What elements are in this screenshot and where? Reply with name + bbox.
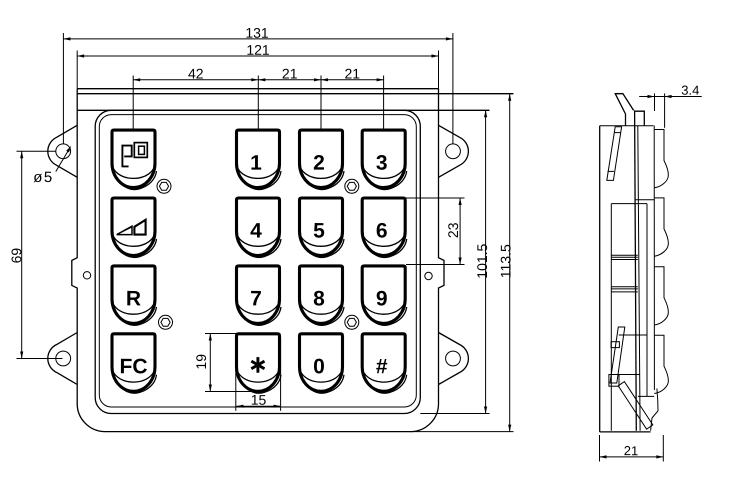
- svg-text:42: 42: [188, 65, 204, 81]
- svg-text:69: 69: [8, 248, 24, 264]
- svg-text:8: 8: [313, 287, 325, 310]
- svg-text:101.5: 101.5: [474, 243, 490, 278]
- svg-text:3: 3: [376, 152, 388, 175]
- svg-text:15: 15: [251, 392, 267, 408]
- svg-text:21: 21: [345, 65, 361, 81]
- svg-text:7: 7: [250, 287, 262, 310]
- svg-text:#: #: [376, 355, 388, 378]
- svg-text:19: 19: [193, 354, 209, 370]
- svg-text:2: 2: [313, 152, 325, 175]
- svg-text:0: 0: [313, 355, 325, 378]
- svg-text:4: 4: [250, 219, 262, 242]
- svg-text:21: 21: [282, 65, 298, 81]
- svg-text:R: R: [126, 287, 141, 310]
- svg-text:FC: FC: [119, 355, 147, 378]
- svg-text:131: 131: [245, 25, 269, 41]
- svg-text:121: 121: [246, 42, 270, 58]
- svg-text:ø5: ø5: [33, 169, 54, 186]
- svg-text:23: 23: [445, 222, 461, 238]
- svg-text:3.4: 3.4: [681, 83, 699, 98]
- svg-text:113.5: 113.5: [497, 244, 513, 278]
- svg-text:9: 9: [376, 287, 388, 310]
- svg-text:1: 1: [250, 152, 262, 175]
- svg-text:6: 6: [376, 219, 388, 242]
- svg-text:21: 21: [624, 443, 639, 458]
- svg-text:5: 5: [313, 219, 325, 242]
